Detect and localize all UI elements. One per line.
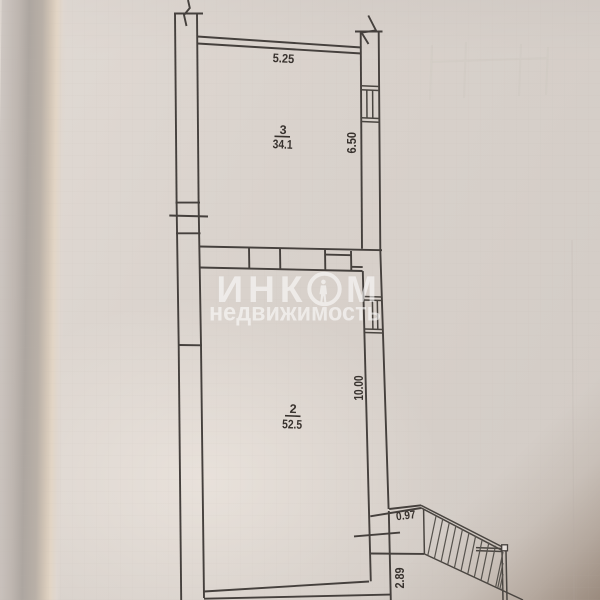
- svg-text:34.1: 34.1: [272, 137, 293, 152]
- svg-text:10.00: 10.00: [352, 375, 366, 400]
- svg-text:6.50: 6.50: [345, 132, 359, 154]
- svg-text:0.97: 0.97: [395, 509, 416, 523]
- svg-text:2: 2: [289, 402, 296, 416]
- svg-text:3: 3: [279, 123, 286, 137]
- svg-text:5.25: 5.25: [272, 51, 294, 66]
- svg-text:52.5: 52.5: [282, 417, 303, 432]
- svg-text:недвижимость: недвижимость: [209, 299, 381, 327]
- svg-text:2.89: 2.89: [393, 567, 407, 588]
